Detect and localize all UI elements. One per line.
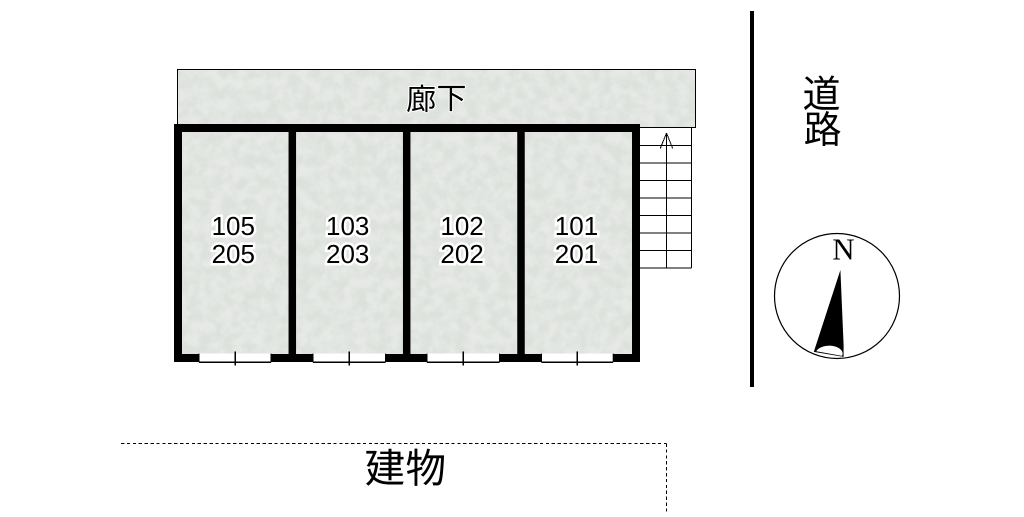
svg-text:201: 201 <box>555 239 598 269</box>
svg-text:101: 101 <box>555 211 598 241</box>
svg-text:202: 202 <box>440 239 483 269</box>
svg-text:105: 105 <box>212 211 255 241</box>
svg-text:102: 102 <box>440 211 483 241</box>
svg-text:205: 205 <box>212 239 255 269</box>
svg-text:N: N <box>832 232 854 267</box>
svg-text:103: 103 <box>326 211 369 241</box>
svg-text:203: 203 <box>326 239 369 269</box>
